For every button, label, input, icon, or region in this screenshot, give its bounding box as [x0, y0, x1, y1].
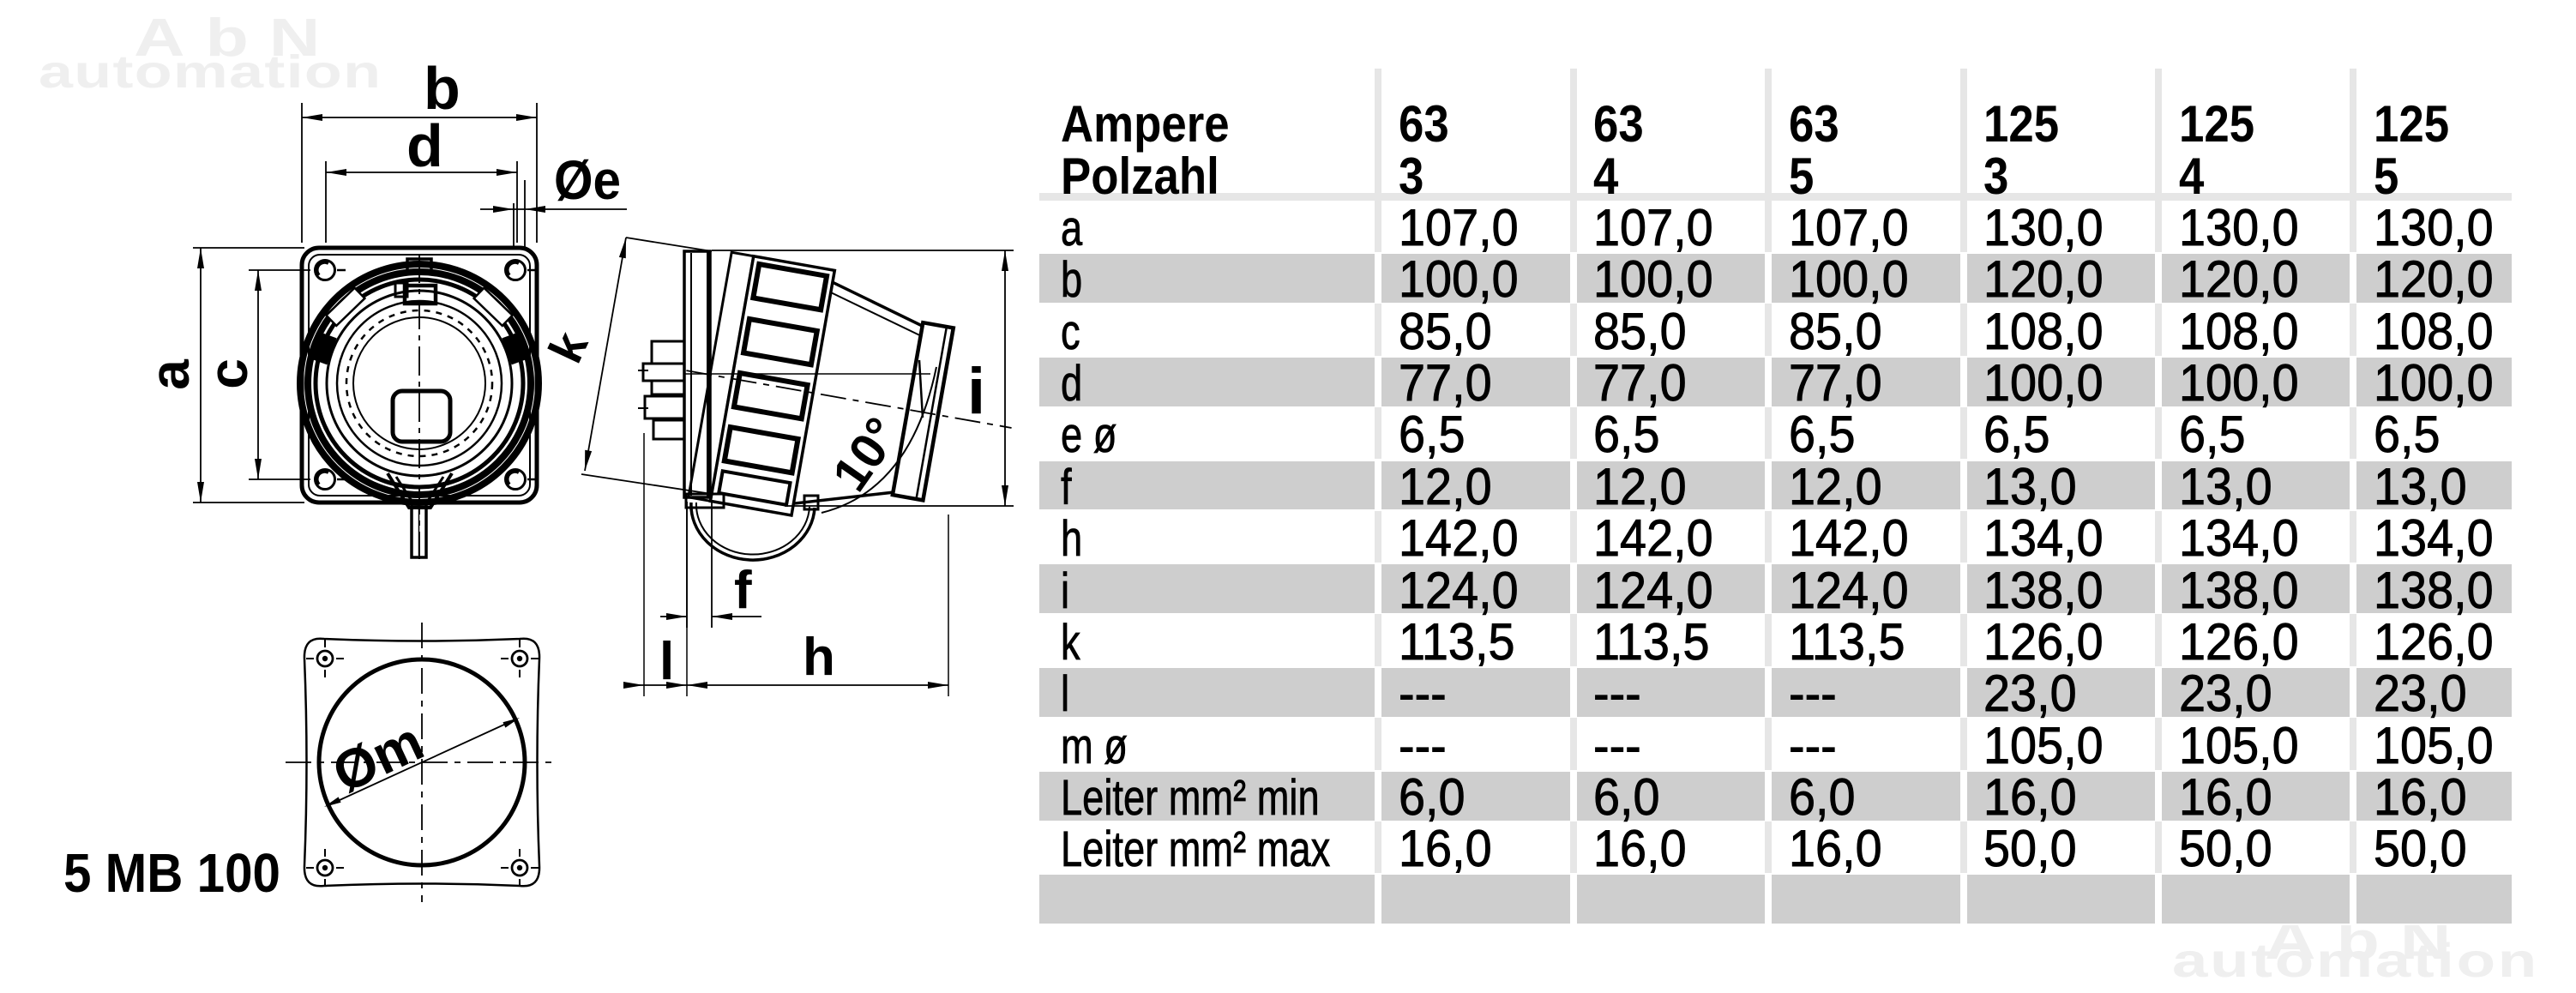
svg-text:c: c [197, 358, 259, 389]
svg-text:k: k [538, 323, 599, 371]
svg-text:10°: 10° [822, 407, 911, 501]
svg-text:d: d [406, 112, 443, 179]
svg-text:i: i [967, 355, 985, 428]
svg-text:h: h [803, 628, 835, 687]
svg-text:5 MB 100: 5 MB 100 [63, 842, 280, 904]
svg-text:Øe: Øe [554, 149, 621, 211]
svg-text:a: a [139, 359, 201, 390]
svg-text:f: f [734, 561, 752, 620]
svg-text:l: l [659, 632, 674, 691]
svg-text:Øm: Øm [323, 710, 432, 804]
